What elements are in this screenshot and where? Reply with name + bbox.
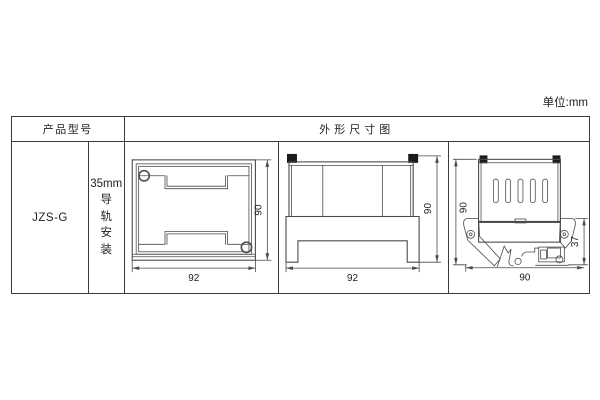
dim-front-view-width: 92 [347, 273, 359, 284]
front-view-drawing: 92 90 [279, 142, 448, 293]
top-view-height-dimension: 90 [253, 160, 271, 260]
side-view-height-dimension: 90 [453, 159, 477, 264]
mounting-size: 35mm [90, 179, 122, 191]
front-view-body [286, 154, 419, 262]
dim-top-view-height: 90 [253, 204, 264, 216]
vent-slots [493, 179, 547, 203]
mounting-cell: 35mm 导 轨 安 装 [89, 142, 125, 293]
side-view-drawing: 90 37 90 [449, 142, 589, 293]
top-view-body [132, 160, 255, 260]
mounting-char: 轨 [101, 212, 113, 224]
dimension-sheet: 单位:mm 产品型号 外形尺寸图 JZS-G 35mm 导 轨 安 装 [0, 0, 600, 400]
dim-front-view-height: 90 [423, 203, 434, 215]
corner-screw-hole [241, 242, 251, 252]
header-cell-product-model: 产品型号 [12, 117, 125, 142]
dim-side-view-height: 90 [458, 202, 469, 213]
side-view-width-dimension: 90 [466, 265, 584, 284]
drawing-cell-front-view: 92 90 [279, 142, 449, 293]
mounting-char: 导 [101, 195, 113, 207]
model-cell: JZS-G [12, 142, 89, 293]
top-view-drawing: 92 90 [125, 142, 279, 293]
dim-side-view-depth: 37 [570, 236, 581, 247]
dim-top-view-width: 92 [188, 273, 200, 284]
mounting-char: 安 [101, 228, 113, 240]
din-rail-clip [497, 246, 568, 267]
header-cell-dimension-title: 外形尺寸图 [125, 117, 590, 142]
mounting-char: 装 [101, 245, 113, 257]
drawing-cell-top-view: 92 90 [125, 142, 280, 293]
side-view-body [464, 155, 576, 266]
unit-label: 单位:mm [543, 94, 588, 110]
front-view-height-dimension: 90 [418, 156, 441, 262]
top-view-width-dimension: 92 [132, 260, 255, 284]
drawing-cell-side-view: 90 37 90 [449, 142, 589, 293]
dim-side-view-width: 90 [519, 273, 530, 284]
spec-table: 产品型号 外形尺寸图 JZS-G 35mm 导 轨 安 装 [11, 116, 590, 294]
front-view-width-dimension: 92 [286, 262, 419, 284]
side-view-depth-dimension: 37 [568, 218, 588, 264]
